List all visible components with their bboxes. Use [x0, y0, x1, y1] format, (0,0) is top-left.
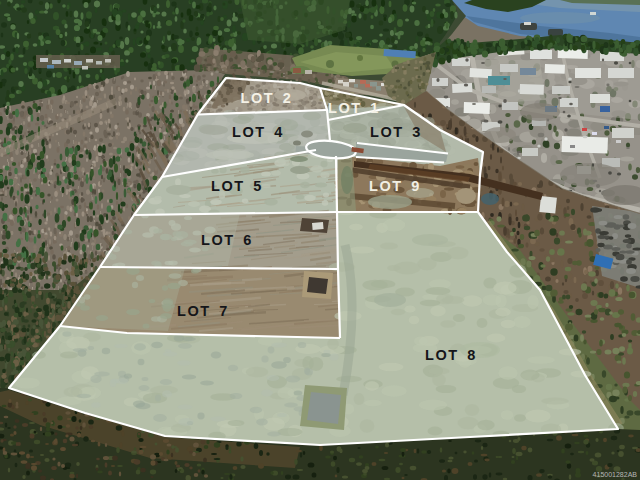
- svg-text:LOT 8: LOT 8: [425, 347, 477, 363]
- svg-text:LOT 3: LOT 3: [370, 124, 422, 140]
- svg-text:LOT 5: LOT 5: [211, 178, 263, 194]
- svg-text:415001282AB: 415001282AB: [593, 471, 638, 478]
- svg-text:LOT 1: LOT 1: [328, 100, 380, 116]
- svg-text:LOT 7: LOT 7: [177, 303, 229, 319]
- svg-text:LOT 9: LOT 9: [369, 178, 421, 194]
- svg-text:LOT 2: LOT 2: [240, 90, 292, 106]
- svg-text:LOT 4: LOT 4: [232, 124, 284, 140]
- svg-text:LOT 6: LOT 6: [201, 232, 253, 248]
